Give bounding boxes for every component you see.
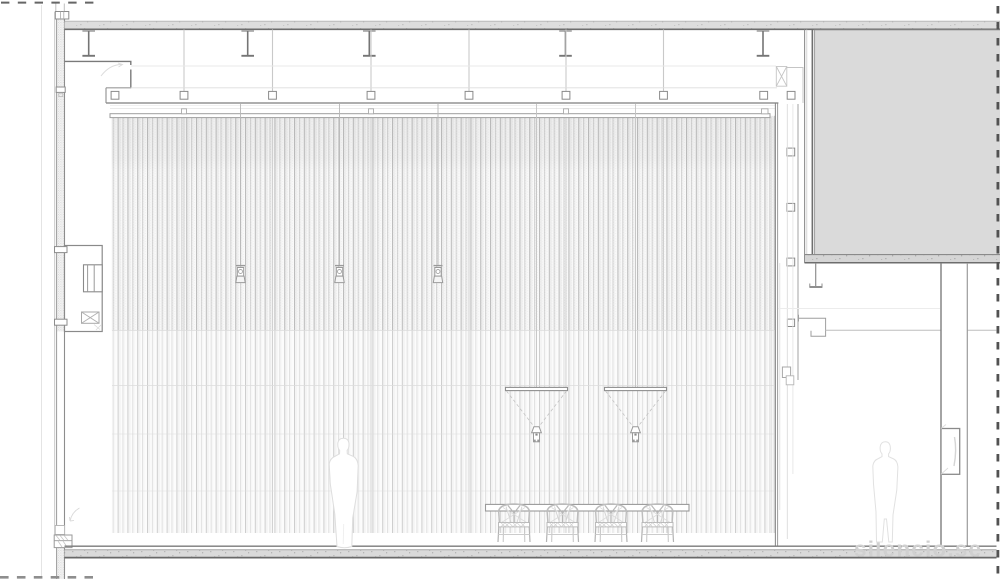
svg-text:silencio.se: silencio.se — [854, 537, 982, 562]
